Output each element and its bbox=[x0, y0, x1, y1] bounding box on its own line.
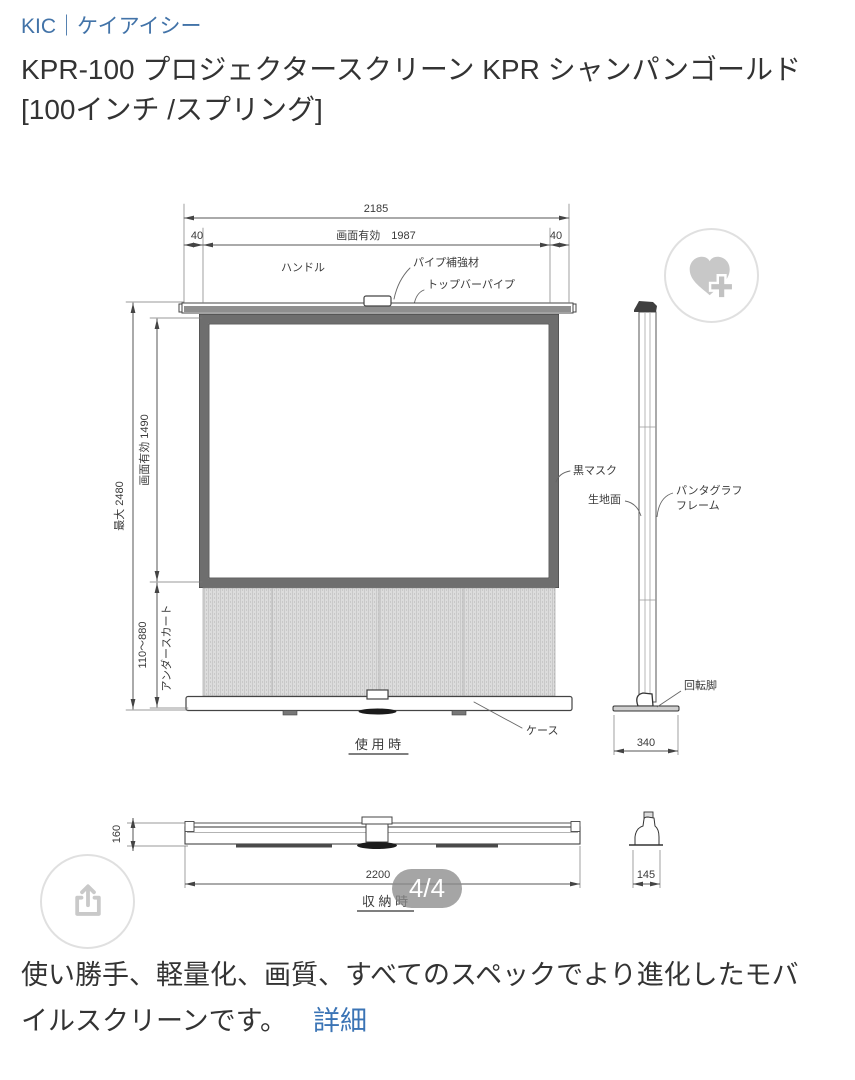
label-pipe-reinforcement: パイプ補強材 bbox=[413, 255, 479, 269]
dim-stored-depth: 145 bbox=[637, 869, 655, 881]
share-icon bbox=[62, 876, 114, 928]
label-fabric-surface: 生地面 bbox=[588, 492, 621, 506]
product-description: 使い勝手、軽量化、画質、すべてのスペックでより進化したモバ イルスクリーンです。… bbox=[21, 952, 837, 1044]
side-view: 生地面 パンタグラフ フレーム 回転脚 340 bbox=[588, 301, 743, 755]
dim-effective-height: 画面有効 1490 bbox=[137, 414, 151, 486]
product-title-line2: [100インチ /スプリング] bbox=[21, 94, 323, 125]
label-top-bar-pipe: トップバーパイプ bbox=[427, 278, 515, 291]
description-line1: 使い勝手、軽量化、画質、すべてのスペックでより進化したモバ bbox=[21, 960, 799, 990]
label-handle: ハンドル bbox=[281, 262, 325, 274]
share-button[interactable] bbox=[40, 854, 135, 949]
header: KIC｜ケイアイシー KPR-100 プロジェクタースクリーン KPR シャンパ… bbox=[21, 10, 835, 130]
page-indicator-text: 4/4 bbox=[409, 873, 445, 904]
front-view: 2185 40 画面有効 1987 40 ハンドル パイプ補強材 トップバーパイ… bbox=[112, 203, 617, 754]
caption-in-use: 使 用 時 bbox=[355, 737, 401, 752]
dim-margin-left: 40 bbox=[191, 230, 203, 242]
detail-link[interactable]: 詳細 bbox=[313, 1006, 367, 1036]
stored-view: 160 2200 収 納 時 145 bbox=[111, 812, 663, 911]
dim-underskirt-height: 110〜880 bbox=[137, 622, 149, 669]
dim-base-depth: 340 bbox=[637, 737, 655, 749]
brand-link[interactable]: KIC｜ケイアイシー bbox=[21, 10, 835, 40]
product-title: KPR-100 プロジェクタースクリーン KPR シャンパンゴールド [100イ… bbox=[21, 50, 835, 130]
page-indicator-badge: 4/4 bbox=[392, 869, 462, 908]
dim-stored-width: 2200 bbox=[366, 869, 390, 881]
product-page: KIC｜ケイアイシー KPR-100 プロジェクタースクリーン KPR シャンパ… bbox=[0, 0, 855, 1080]
dim-total-width: 2185 bbox=[364, 203, 388, 215]
dim-max-height: 最大 2480 bbox=[112, 481, 126, 531]
label-case: ケース bbox=[526, 724, 558, 737]
label-black-mask: 黒マスク bbox=[573, 464, 617, 477]
dim-stored-height: 160 bbox=[111, 825, 123, 843]
label-rotating-foot: 回転脚 bbox=[684, 678, 717, 692]
dim-effective-width: 画面有効 1987 bbox=[336, 228, 415, 242]
label-pantograph-line2: フレーム bbox=[676, 499, 720, 512]
favorite-button[interactable] bbox=[664, 228, 759, 323]
heart-plus-icon bbox=[682, 247, 742, 305]
label-underskirt: アンダースカート bbox=[159, 604, 173, 691]
product-title-line1: KPR-100 プロジェクタースクリーン KPR シャンパンゴールド bbox=[21, 54, 801, 85]
label-pantograph-line1: パンタグラフ bbox=[676, 483, 743, 497]
description-line2: イルスクリーンです。 bbox=[21, 1006, 287, 1036]
dim-margin-right: 40 bbox=[550, 230, 562, 242]
